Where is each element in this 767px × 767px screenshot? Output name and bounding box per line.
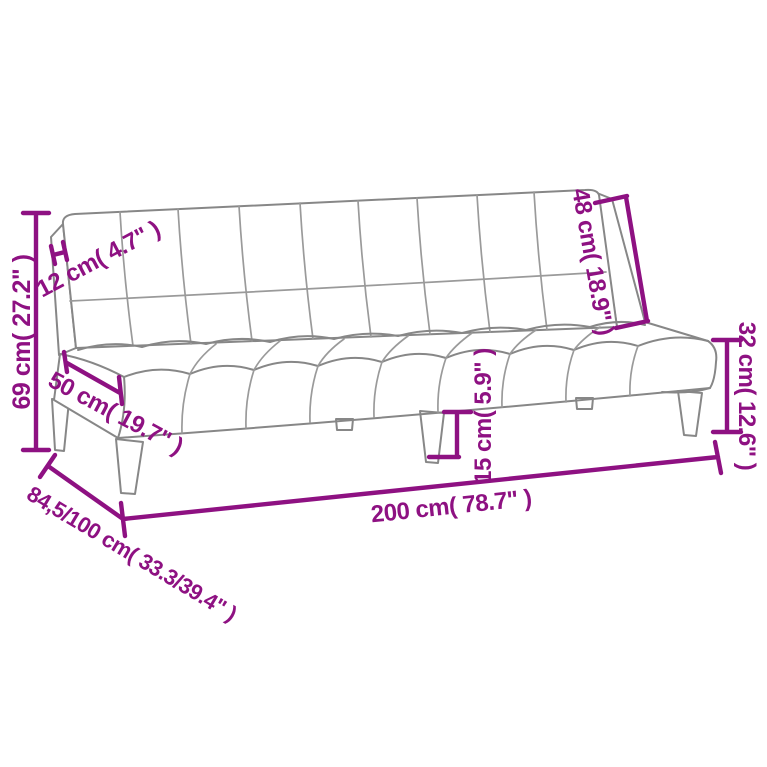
seat-front-bottom-edge bbox=[118, 388, 710, 438]
seat-right-face bbox=[662, 341, 716, 393]
diagram-canvas: 69 cm( 27.2" ) 12 cm( 4.7" ) 50 cm( 19.7… bbox=[0, 0, 767, 767]
leg-height-label: 15 cm( 5.9" ) bbox=[470, 348, 497, 484]
seat-height-label: 32 cm( 12.6" ) bbox=[733, 322, 760, 470]
overall-height-label: 69 cm( 27.2" ) bbox=[8, 254, 36, 409]
product-dimension-diagram: 69 cm( 27.2" ) 12 cm( 4.7" ) 50 cm( 19.7… bbox=[0, 0, 767, 767]
dim-overall-width: 200 cm( 78.7" ) bbox=[121, 442, 721, 536]
overall-depth-label: 84,5/100 cm( 33.3/39.4" ) bbox=[23, 481, 242, 626]
seat-front-grooves bbox=[182, 346, 638, 433]
dim-overall-height: 69 cm( 27.2" ) bbox=[8, 213, 49, 450]
backrest-front-face bbox=[63, 190, 617, 348]
front-left-leg bbox=[116, 439, 143, 494]
dim-seat-height: 32 cm( 12.6" ) bbox=[713, 322, 760, 470]
sofa-backrest bbox=[51, 190, 645, 355]
right-leg bbox=[678, 391, 702, 436]
